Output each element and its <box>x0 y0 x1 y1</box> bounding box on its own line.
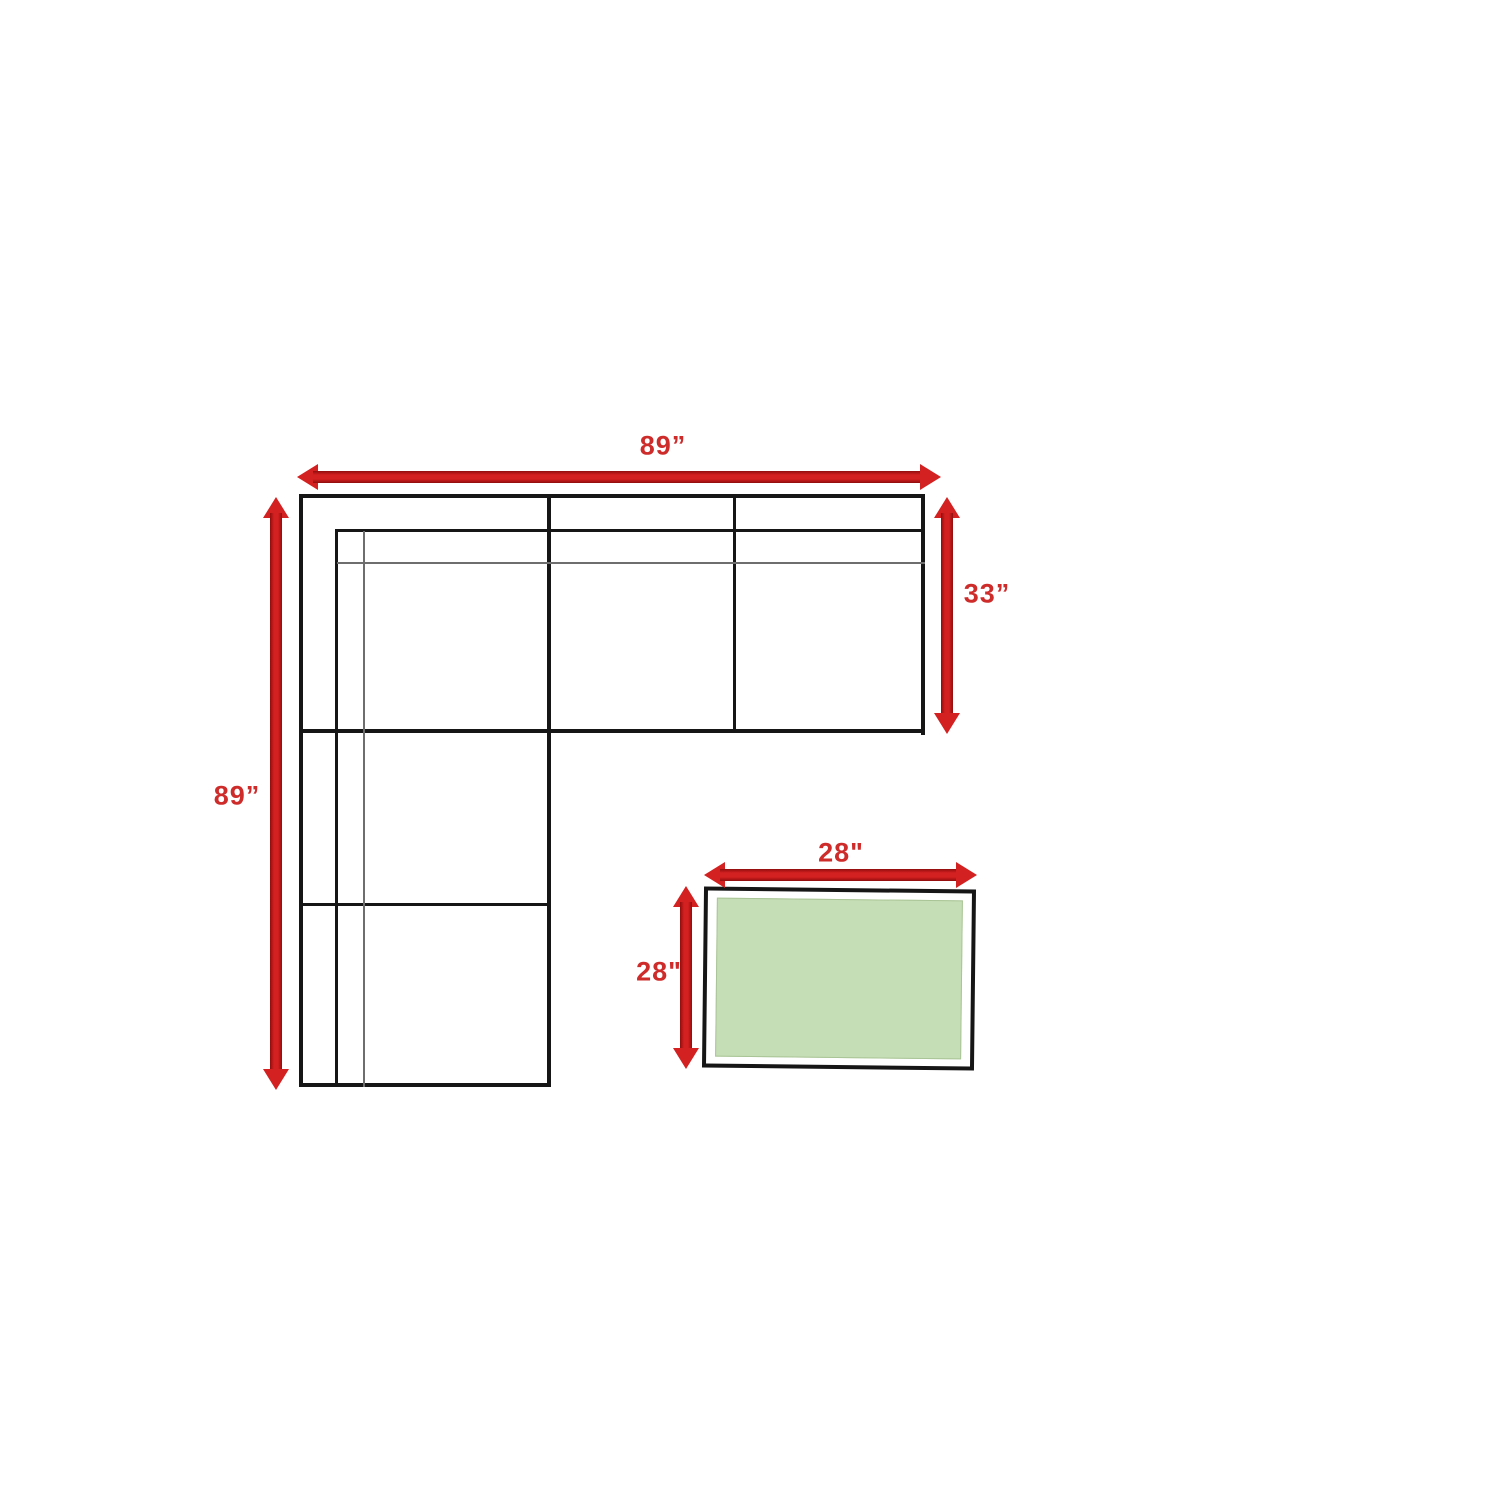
diagram-canvas: 89” 89” 33” 28" 28" <box>0 0 1500 1500</box>
arrow-shaft <box>313 471 925 483</box>
arrowhead-right-icon <box>956 862 977 888</box>
sofa-width-arrow <box>297 464 941 490</box>
arrow-shaft <box>720 869 961 881</box>
arrowhead-right-icon <box>920 464 941 490</box>
sofa-backrest-inner-vertical <box>335 529 338 1087</box>
arrow-shaft <box>270 513 282 1074</box>
sofa-depth-arrow <box>934 497 960 734</box>
sofa-depth-label: 33” <box>964 579 1011 610</box>
sofa-height-label: 89” <box>214 781 261 812</box>
sofa-seam-vertical-left <box>547 494 551 1087</box>
coffee-table-top-surface <box>715 898 963 1060</box>
arrowhead-down-icon <box>263 1069 289 1090</box>
sofa-height-arrow <box>263 497 289 1090</box>
coffee-table <box>702 886 976 1070</box>
arrowhead-down-icon <box>934 713 960 734</box>
sofa-outer-top-line <box>299 494 925 498</box>
sofa-cushion-edge-vertical <box>363 531 365 1087</box>
table-width-label: 28" <box>818 838 864 869</box>
sofa-front-edge-line <box>299 729 925 733</box>
arrow-shaft <box>941 513 953 718</box>
sofa-outer-left-line <box>299 494 303 1087</box>
sofa-backrest-inner-horizontal <box>335 529 925 532</box>
sofa-cushion-edge-horizontal <box>337 562 925 564</box>
table-depth-label: 28" <box>636 957 682 988</box>
sofa-width-label: 89” <box>640 431 687 462</box>
arrowhead-down-icon <box>673 1048 699 1069</box>
